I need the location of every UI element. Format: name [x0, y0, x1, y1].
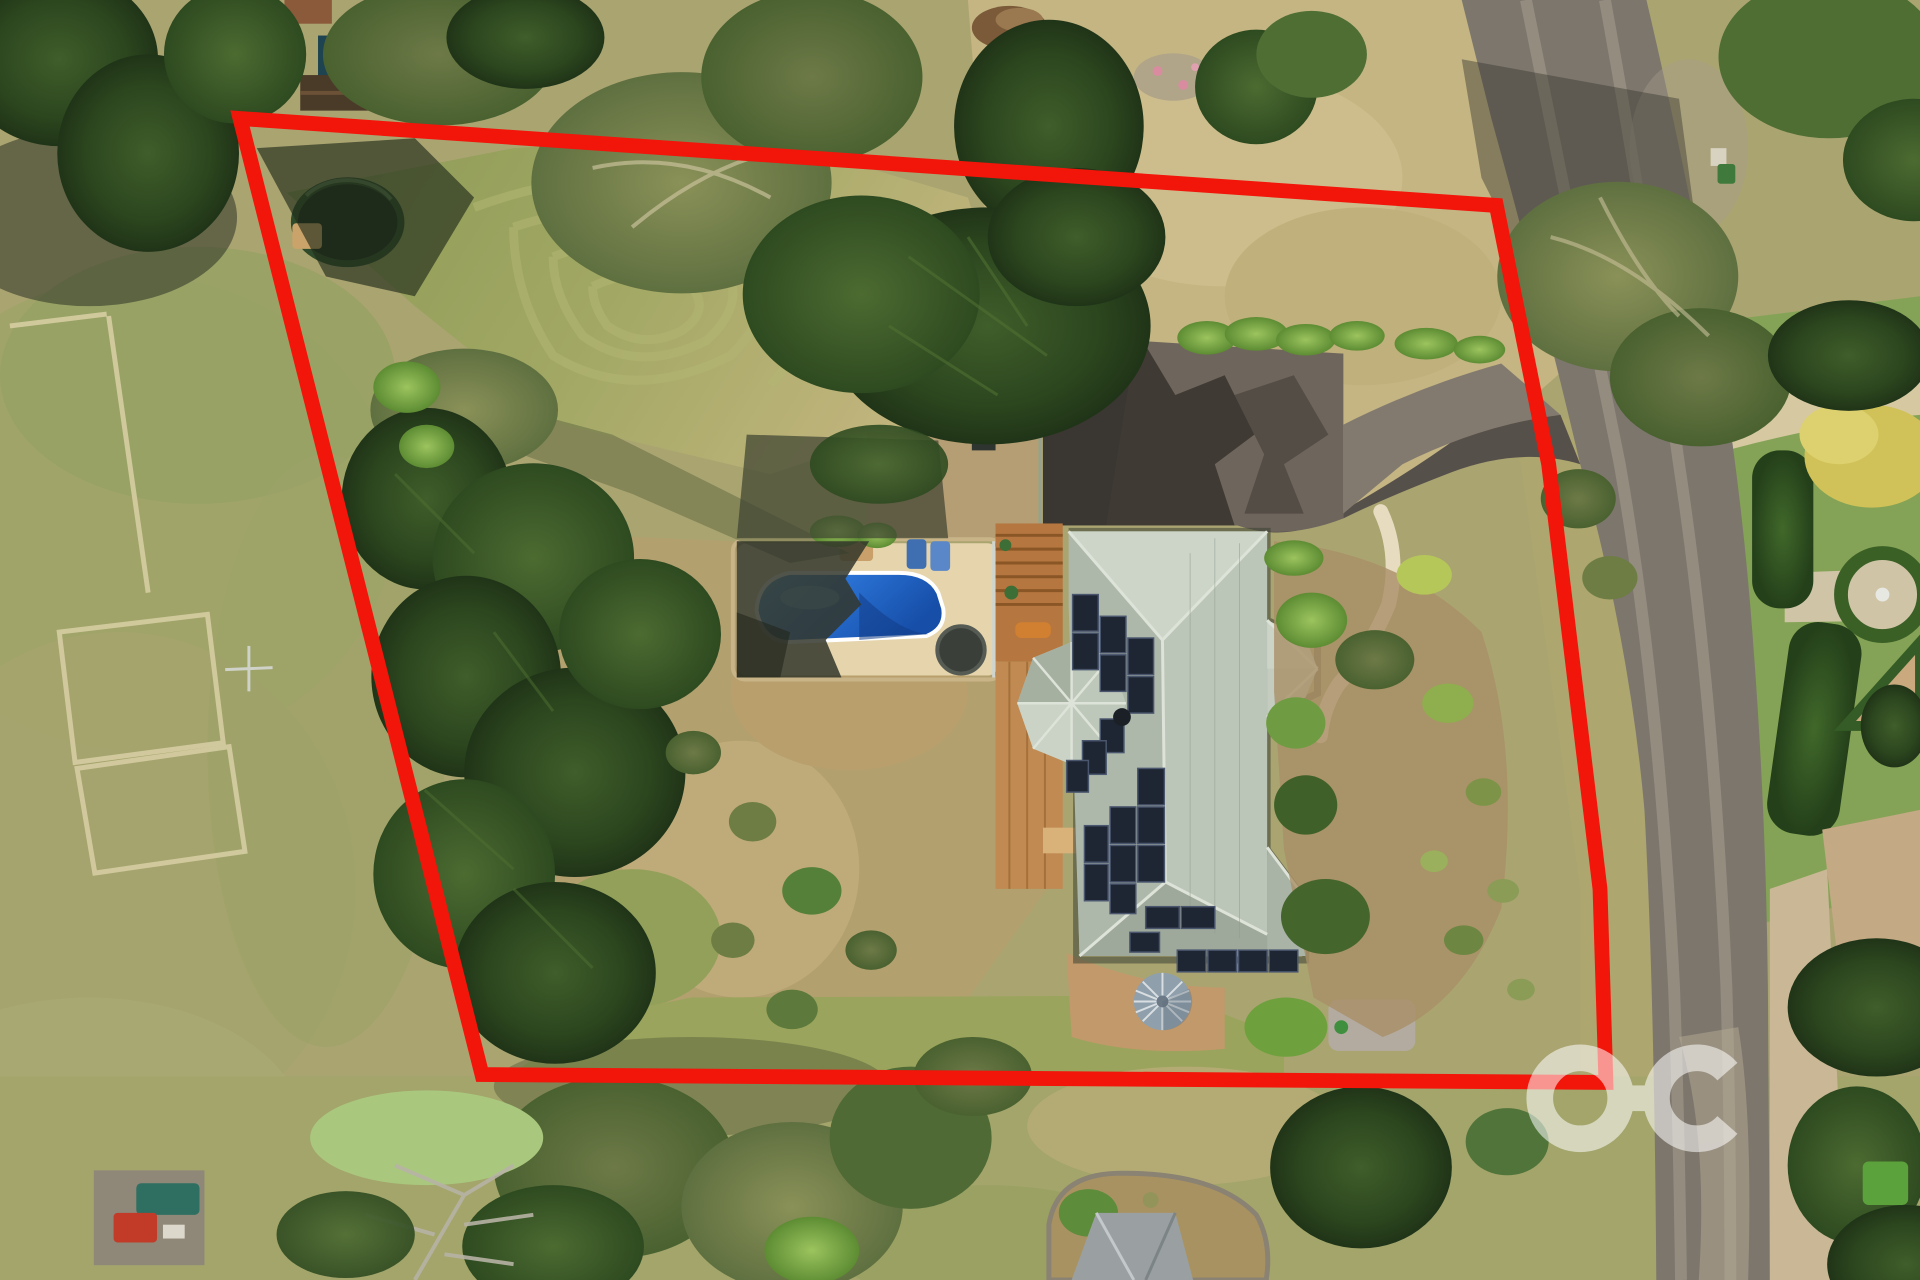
screenshot-root: Aerial view of property — [0, 0, 1920, 1280]
aerial-photo: Aerial view of property — [0, 0, 1920, 1280]
